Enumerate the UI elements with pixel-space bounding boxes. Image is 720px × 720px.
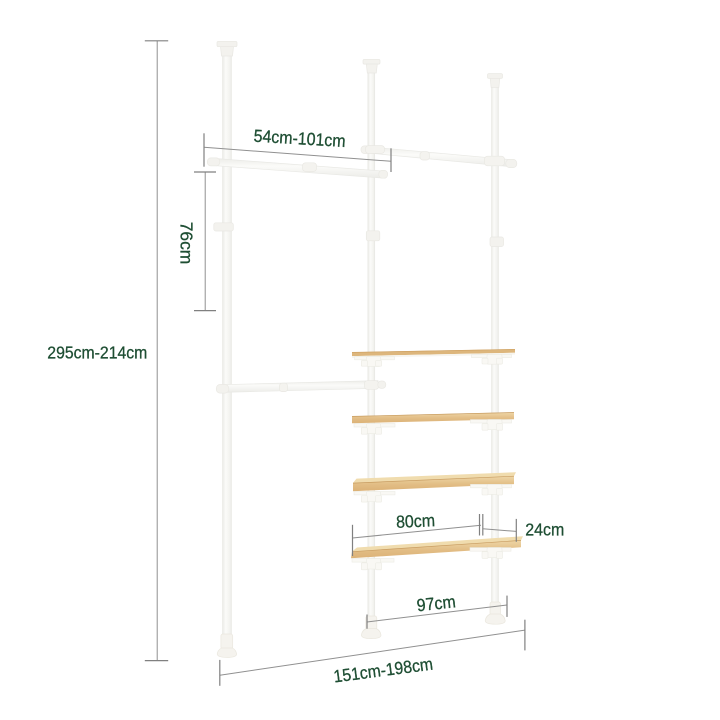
svg-text:24cm: 24cm	[525, 520, 564, 540]
svg-text:76cm: 76cm	[177, 222, 197, 265]
svg-text:97cm: 97cm	[416, 591, 457, 615]
svg-text:295cm-214cm: 295cm-214cm	[47, 343, 147, 363]
svg-text:80cm: 80cm	[396, 510, 436, 532]
